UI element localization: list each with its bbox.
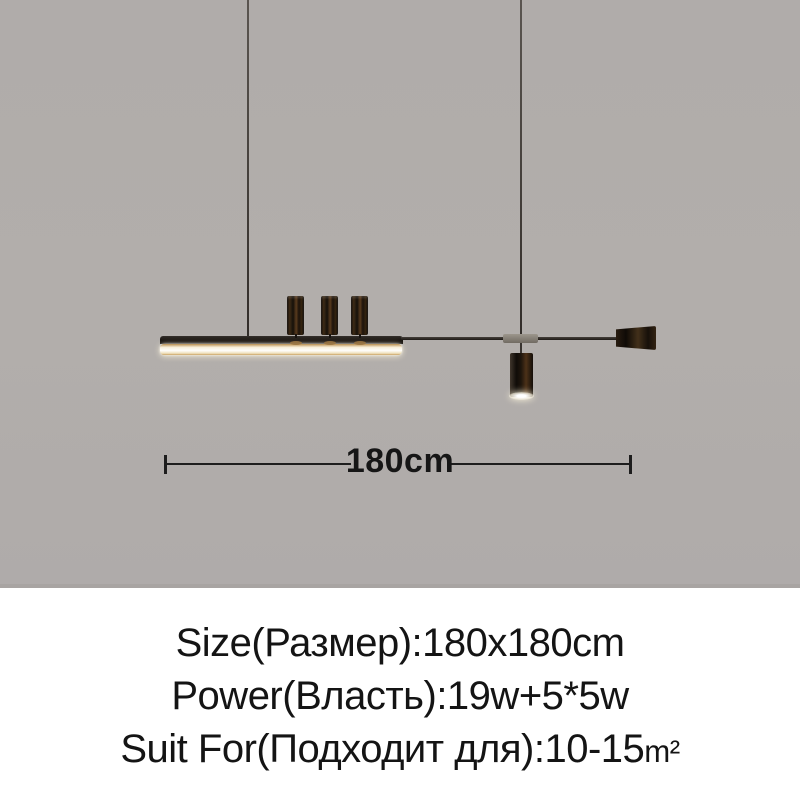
- spec-line-suit: Suit For(Подходит для):10-15m²: [0, 723, 800, 778]
- top-spotlight-2-base: [324, 341, 336, 345]
- top-spotlight-3: [351, 296, 368, 335]
- suspension-wire-right: [520, 0, 522, 335]
- specs-section: Size(Размер):180x180cm Power(Власть):19w…: [0, 588, 800, 778]
- dimension-tick-right: [629, 455, 632, 474]
- suspension-wire-left: [247, 0, 249, 338]
- rod-connector: [503, 334, 538, 343]
- top-spotlight-1: [287, 296, 304, 335]
- led-light-strip: [160, 344, 402, 355]
- area-unit: m²: [644, 734, 679, 769]
- product-card: 180cm Size(Размер):180x180cm Power(Власт…: [0, 0, 800, 800]
- top-spotlight-3-stem: [359, 334, 361, 338]
- led-bar-housing: [160, 336, 403, 344]
- spec-line-power: Power(Власть):19w+5*5w: [0, 670, 800, 723]
- spec-line-suit-text: Suit For(Подходит для):10-15: [120, 727, 644, 771]
- spec-line-size: Size(Размер):180x180cm: [0, 617, 800, 670]
- end-spotlight: [616, 326, 656, 350]
- pendant-spotlight-glow: [509, 392, 534, 400]
- dimension-tick-left: [164, 455, 167, 474]
- pendant-spotlight: [510, 353, 533, 397]
- top-spotlight-2-stem: [329, 334, 331, 338]
- dimension-label: 180cm: [300, 442, 500, 481]
- top-spotlight-1-stem: [295, 334, 297, 338]
- top-spotlight-3-base: [354, 341, 366, 345]
- top-spotlight-2: [321, 296, 338, 335]
- top-spotlight-1-base: [290, 341, 302, 345]
- product-photo: 180cm: [0, 0, 800, 588]
